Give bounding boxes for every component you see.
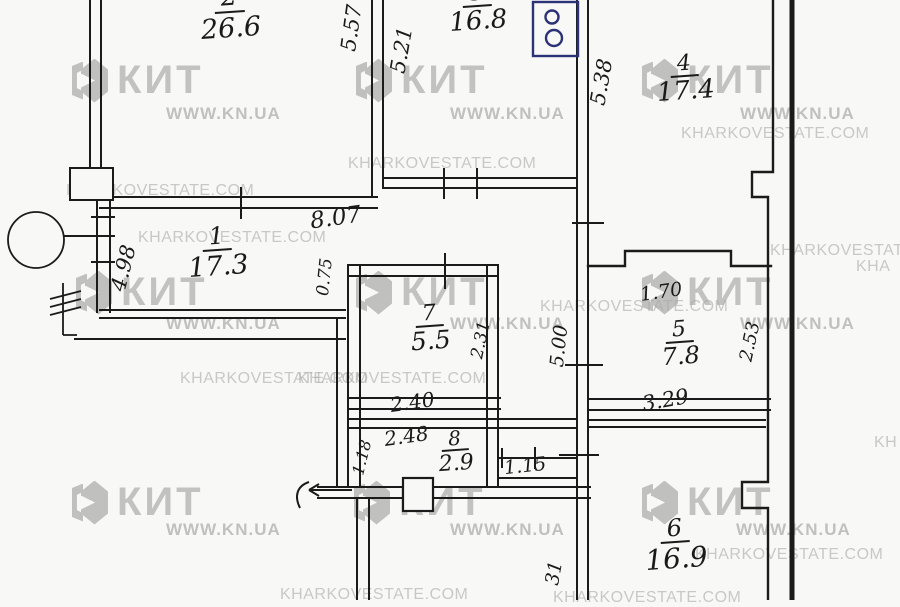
dim-31-cut: 31: [541, 559, 567, 587]
round-column-icon: [8, 212, 64, 268]
room-label-5: 5 7.8: [648, 316, 712, 373]
room-label-8: 8 2.9: [426, 426, 484, 478]
section-hatch-icon: [50, 283, 81, 335]
stove-icon: [533, 2, 578, 56]
room-label-2: 2 26.6: [188, 0, 272, 47]
room-label-4: 4 17.4: [648, 50, 722, 110]
dim-0-75: 0.75: [313, 257, 337, 297]
shaft-box-icon: [403, 478, 433, 511]
dim-5-00: 5.00: [546, 324, 572, 368]
wall-pier: [70, 168, 113, 200]
entrance-arrow-icon: [297, 482, 352, 508]
room-label-1: 1 17.3: [178, 221, 257, 284]
dim-1-15: 1.15: [503, 453, 547, 479]
room-label-7: 7 5.5: [398, 300, 462, 358]
scanned-floor-plan: { "rooms": { "r1": {"number": "1", "area…: [0, 0, 900, 600]
room-label-3: 3 16.8: [438, 0, 517, 40]
room-label-6: 6 16.9: [636, 513, 715, 577]
